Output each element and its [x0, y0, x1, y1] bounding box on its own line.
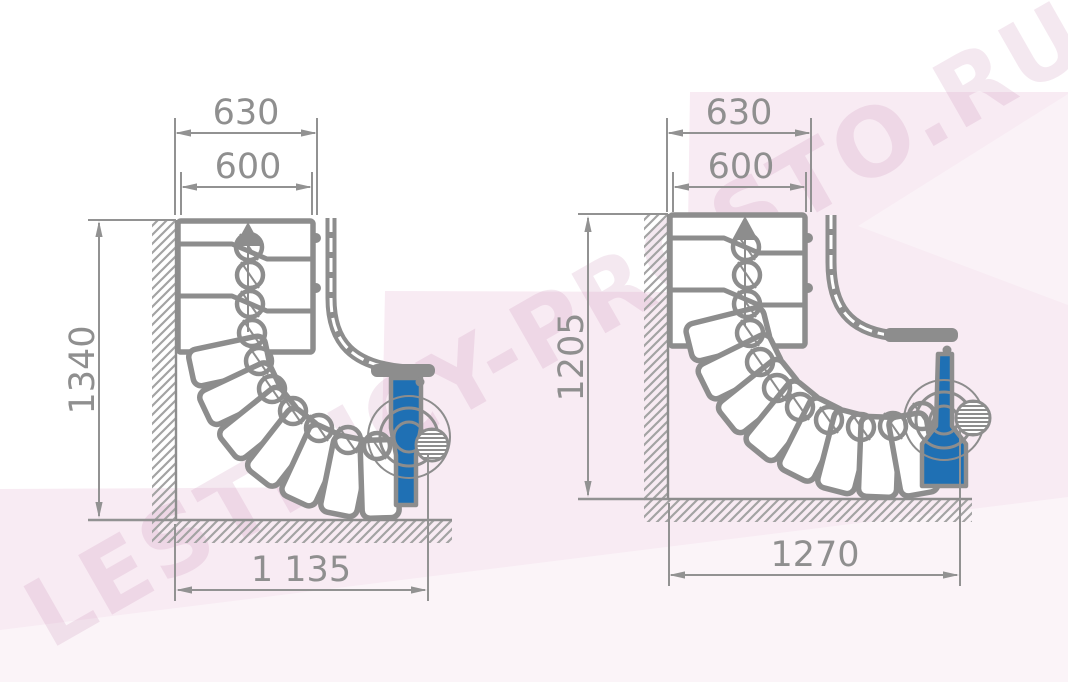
- right-dim-total-width-label: 1270: [770, 535, 859, 575]
- right-dim-height-label: 1205: [552, 312, 592, 401]
- left-dim-outer-width-label: 630: [213, 93, 280, 133]
- dimension-arrowhead: [667, 129, 683, 136]
- floor-hatch: [644, 500, 972, 522]
- right-dim-tread-width-label: 600: [708, 147, 775, 187]
- left-dim-height-label: 1340: [63, 325, 103, 414]
- rail-hook: [943, 346, 952, 355]
- baluster-connector: [311, 233, 321, 243]
- dimension-arrowhead: [175, 129, 191, 136]
- dimension-arrowhead: [95, 221, 102, 237]
- baluster-connector: [311, 283, 321, 293]
- baluster-connector: [803, 283, 813, 293]
- rail-hook: [416, 378, 425, 387]
- rail-bracket: [884, 328, 958, 342]
- staircase-drawing-page: LESTNICY-PROSTO.RU 630 600 1340 1 135 63…: [0, 0, 1068, 682]
- wall-hatch: [152, 220, 176, 520]
- left-dim-tread-width-label: 600: [215, 147, 282, 187]
- floor-hatch: [152, 521, 452, 543]
- dimension-arrowhead: [673, 183, 689, 190]
- rail-bracket: [371, 364, 435, 377]
- right-dim-outer-width-label: 630: [706, 93, 773, 133]
- dimension-arrowhead: [301, 129, 317, 136]
- wall-hatch: [644, 214, 668, 499]
- dimension-arrowhead: [296, 183, 312, 190]
- handrail-ball-finial: [416, 429, 448, 461]
- dimension-arrowhead: [181, 183, 197, 190]
- left-dim-total-width-label: 1 135: [251, 550, 351, 590]
- technical-drawing-canvas: LESTNICY-PROSTO.RU 630 600 1340 1 135 63…: [0, 0, 1068, 682]
- handrail-ball-finial: [956, 401, 990, 435]
- baluster-connector: [803, 233, 813, 243]
- dimension-arrowhead: [584, 216, 591, 232]
